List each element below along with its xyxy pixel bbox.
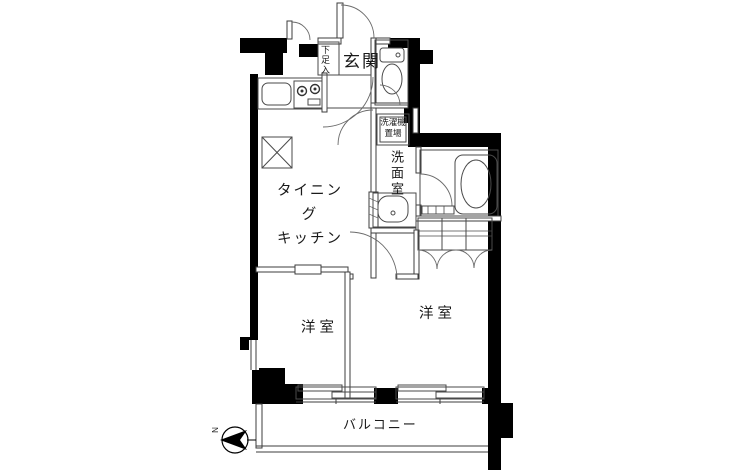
label-washer-line2: 置場 <box>384 128 401 138</box>
genkan-floor <box>327 75 371 108</box>
wall-bottom-left-step <box>252 368 303 404</box>
genkan-door-arc <box>323 77 373 127</box>
entrance-door-arc <box>341 5 374 38</box>
wall-washroom-east-a <box>413 108 418 133</box>
wall-left-main <box>250 74 258 368</box>
washbasin-icon <box>373 193 416 227</box>
compass-north-label: N <box>211 427 220 433</box>
wall-meter-right <box>299 44 318 57</box>
bath-counter <box>422 206 454 214</box>
window-left-room <box>296 385 376 404</box>
wall-bottom-mid <box>374 388 398 404</box>
wall-rooms-divider <box>345 272 350 398</box>
wall-top-left-block <box>240 38 287 75</box>
toilet-door-arc <box>380 85 400 105</box>
wall-balcony-left <box>256 404 262 448</box>
wall-washroom-bottom <box>371 228 416 233</box>
wall-right-main <box>488 133 501 470</box>
label-dining-kitchen: タイニング キッチン <box>270 180 350 252</box>
compass-icon: N <box>211 427 256 453</box>
kitchen <box>258 78 322 168</box>
left-wall-window <box>249 340 259 370</box>
label-dk-line1: タイニング <box>277 183 343 223</box>
wall-entry-left-stub <box>318 38 341 44</box>
label-dk-line2: キッチン <box>277 231 343 247</box>
wall-corridor-bottom-b <box>396 274 418 279</box>
stove-icon <box>294 81 322 108</box>
bathroom <box>420 150 498 216</box>
refrigerator-space-icon <box>262 137 292 168</box>
kitchen-sink <box>262 83 291 105</box>
entrance-door-leaf <box>337 3 343 38</box>
label-balcony: バルコニー <box>343 414 418 433</box>
wall-bath-top-bar <box>408 133 501 147</box>
bathroom-door-arc <box>420 174 452 206</box>
meter-door-leaf <box>287 21 292 39</box>
wall-left-bump <box>240 337 250 350</box>
label-washer-space: 洗濯機 置場 <box>376 117 410 140</box>
floorplan-page: N 玄関 下足入 洗濯機 置場 洗面室 タイニング キッチン 洋室 洋室 バルコ… <box>0 0 730 470</box>
label-genkan: 玄関 <box>343 47 381 72</box>
wall-right-bump-bottom <box>501 403 513 438</box>
label-room-left: 洋室 <box>301 316 338 337</box>
wall-right-bump-top <box>420 50 433 64</box>
dk-room-slider-panel <box>295 265 321 274</box>
toilet-flush-button <box>396 53 400 57</box>
balcony <box>256 446 488 452</box>
closet-bifold-arcs <box>418 250 492 269</box>
label-room-right: 洋室 <box>419 302 456 323</box>
meter-door-arc <box>292 22 310 40</box>
label-shoe-box: 下足入 <box>319 45 332 75</box>
closet <box>418 218 492 269</box>
wall-kitchen-genkan-stub <box>322 73 327 112</box>
label-washroom: 洗面室 <box>387 150 406 198</box>
label-washer-line1: 洗濯機 <box>380 117 406 127</box>
window-right-room <box>396 385 484 404</box>
